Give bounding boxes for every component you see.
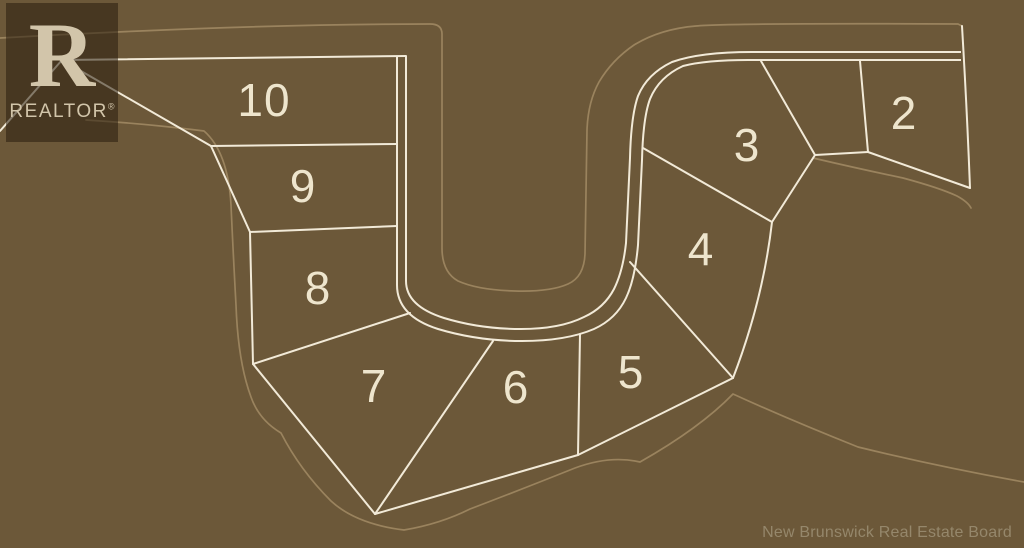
faint-boundary-lines <box>0 24 1024 530</box>
lot-label-5: 5 <box>618 349 645 395</box>
lot-label-7: 7 <box>361 363 388 409</box>
lot-boundaries <box>0 26 970 514</box>
boundary-southeast-upper <box>813 158 971 208</box>
lot-label-8: 8 <box>305 265 332 311</box>
lot6-lot7-divider <box>375 341 493 514</box>
attribution-text: New Brunswick Real Estate Board <box>762 524 1012 542</box>
road-edge-inner <box>406 52 961 329</box>
site-plan-drawing <box>0 0 1024 548</box>
lot4-east-edge <box>733 222 772 378</box>
lot5-lot6-divider <box>578 334 580 455</box>
lot5-south-edge <box>578 378 733 455</box>
realtor-logo: R REALTOR® <box>6 3 118 142</box>
boundary-north-and-inner-u <box>0 24 962 291</box>
lot8-lot9-divider <box>250 226 397 232</box>
lot-label-10: 10 <box>237 77 290 123</box>
realtor-r-glyph: R <box>29 9 95 101</box>
realtor-wordmark: REALTOR® <box>9 102 114 121</box>
lot9-lot10-divider <box>211 144 397 146</box>
registered-trademark-symbol: ® <box>108 102 115 112</box>
realtor-wordmark-text: REALTOR <box>9 101 108 122</box>
lot7-southwest-edge <box>253 364 375 514</box>
lot-label-3: 3 <box>734 122 761 168</box>
lot-label-6: 6 <box>503 364 530 410</box>
lot-label-2: 2 <box>891 90 918 136</box>
lot2-east-edge <box>962 26 970 188</box>
lot8-west-edge <box>250 232 253 364</box>
lot-map-image: 2345678910 R REALTOR® New Brunswick Real… <box>0 0 1024 548</box>
lot-label-4: 4 <box>688 226 715 272</box>
road <box>397 52 961 341</box>
lot7-lot8-divider <box>253 313 410 364</box>
lot4-lot5-divider <box>630 262 733 378</box>
lot-label-9: 9 <box>290 163 317 209</box>
lot2-west-edge <box>860 61 868 152</box>
lot9-west-edge <box>211 146 250 232</box>
center-lot-south-edge <box>815 152 868 155</box>
lot6-south-edge <box>375 455 578 514</box>
lot4-northeast-edge <box>772 155 815 222</box>
lot3-east-divider <box>761 61 815 155</box>
road-edge-outer <box>397 56 961 341</box>
